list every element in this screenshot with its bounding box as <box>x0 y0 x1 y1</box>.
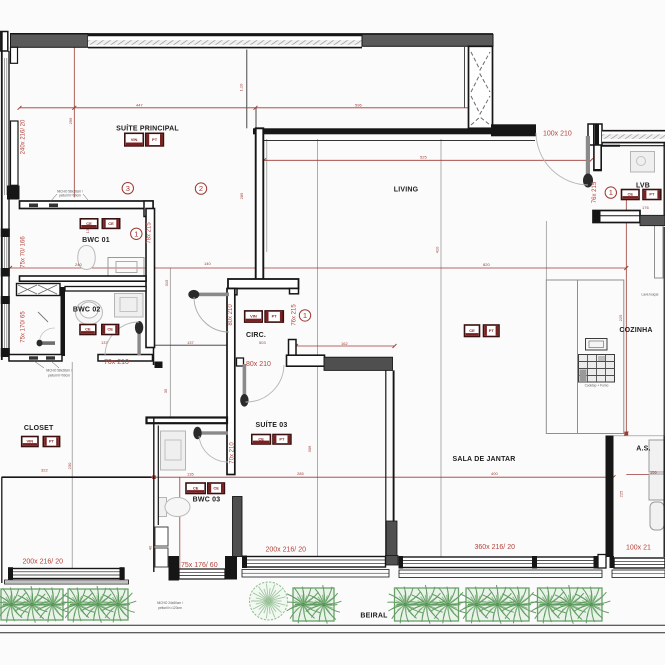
svg-text:Cooktop + Forno: Cooktop + Forno <box>585 384 609 388</box>
svg-text:285: 285 <box>239 192 244 199</box>
svg-text:CE: CE <box>193 485 199 490</box>
svg-text:75x 170/ 65: 75x 170/ 65 <box>21 311 27 343</box>
svg-text:LIVING: LIVING <box>394 187 419 194</box>
svg-text:75x 70/ 166: 75x 70/ 166 <box>21 236 27 268</box>
svg-text:VIN: VIN <box>131 137 138 142</box>
svg-text:PT: PT <box>489 328 495 333</box>
svg-text:525: 525 <box>420 155 427 160</box>
svg-text:peitoril h=90cm: peitoril h=90cm <box>48 374 70 378</box>
svg-text:322: 322 <box>41 468 48 473</box>
svg-text:140: 140 <box>204 261 211 266</box>
svg-text:1: 1 <box>303 311 307 320</box>
svg-text:peitoril h=90cm: peitoril h=90cm <box>59 194 81 198</box>
svg-text:447: 447 <box>136 102 143 107</box>
svg-text:CE: CE <box>85 327 91 332</box>
svg-text:CE: CE <box>86 221 92 226</box>
svg-text:1: 1 <box>609 188 613 197</box>
svg-text:306: 306 <box>307 445 312 452</box>
svg-text:A.S.: A.S. <box>636 446 650 453</box>
svg-text:76x 215: 76x 215 <box>592 181 598 203</box>
svg-text:225: 225 <box>618 314 623 321</box>
svg-text:360x 216/ 20: 360x 216/ 20 <box>475 544 516 551</box>
svg-text:PT: PT <box>279 436 285 441</box>
svg-text:80x 210: 80x 210 <box>246 361 271 368</box>
svg-text:3: 3 <box>126 184 130 193</box>
svg-text:BWC 03: BWC 03 <box>193 497 221 504</box>
svg-text:410: 410 <box>435 246 440 253</box>
svg-text:100x 21: 100x 21 <box>626 545 651 552</box>
svg-text:35: 35 <box>163 388 168 393</box>
svg-text:503: 503 <box>259 340 266 345</box>
svg-text:296: 296 <box>68 117 73 124</box>
svg-text:225: 225 <box>619 490 624 497</box>
svg-text:PT: PT <box>49 439 55 444</box>
svg-text:NICHO 24x60cm /: NICHO 24x60cm / <box>157 601 183 605</box>
svg-text:PT: PT <box>649 192 655 197</box>
svg-text:162: 162 <box>341 341 348 346</box>
svg-text:SALA DE JANTAR: SALA DE JANTAR <box>452 456 515 463</box>
svg-text:VIN: VIN <box>27 439 34 444</box>
svg-text:CIRC.: CIRC. <box>246 332 266 339</box>
svg-text:285: 285 <box>297 471 304 476</box>
svg-text:LVB: LVB <box>636 182 650 189</box>
svg-text:CE: CE <box>108 221 114 226</box>
svg-text:SUÍTE PRINCIPAL: SUÍTE PRINCIPAL <box>116 124 179 133</box>
svg-text:COZINHA: COZINHA <box>619 327 652 334</box>
svg-text:BWC 01: BWC 01 <box>82 237 110 244</box>
svg-text:240: 240 <box>75 262 82 267</box>
svg-text:596: 596 <box>355 102 362 107</box>
svg-text:CE: CE <box>627 192 633 197</box>
svg-text:76x 215: 76x 215 <box>291 304 297 326</box>
svg-text:40: 40 <box>148 545 153 550</box>
svg-text:2: 2 <box>199 184 203 193</box>
svg-text:NICHO 58x28cm /: NICHO 58x28cm / <box>46 369 72 373</box>
svg-text:CLOSET: CLOSET <box>24 425 54 432</box>
svg-text:1: 1 <box>134 229 138 238</box>
svg-text:100x 210: 100x 210 <box>543 130 572 137</box>
svg-text:137: 137 <box>187 340 194 345</box>
svg-text:315: 315 <box>164 279 169 286</box>
svg-text:156: 156 <box>650 470 657 475</box>
svg-text:80x 210: 80x 210 <box>228 304 234 326</box>
svg-text:SUÍTE 03: SUÍTE 03 <box>256 420 288 429</box>
svg-text:PT: PT <box>152 137 158 142</box>
svg-text:1.10: 1.10 <box>239 83 244 92</box>
svg-text:CE: CE <box>107 327 113 332</box>
svg-text:CE: CE <box>213 485 219 490</box>
svg-text:230: 230 <box>67 462 72 469</box>
svg-text:78x 215: 78x 215 <box>146 222 152 244</box>
svg-text:200x 216/ 20: 200x 216/ 20 <box>266 546 307 553</box>
svg-text:CE: CE <box>469 328 475 333</box>
svg-text:Lava louças: Lava louças <box>641 292 658 296</box>
svg-text:BWC 02: BWC 02 <box>73 306 101 313</box>
svg-text:820: 820 <box>483 262 490 267</box>
svg-text:137: 137 <box>101 340 108 345</box>
svg-text:176: 176 <box>642 205 649 210</box>
svg-text:BEIRAL: BEIRAL <box>360 613 388 620</box>
svg-text:70x 210: 70x 210 <box>230 442 236 464</box>
svg-text:PT: PT <box>272 314 278 319</box>
svg-text:75x 176/ 60: 75x 176/ 60 <box>181 562 218 569</box>
svg-text:CE: CE <box>258 436 264 441</box>
svg-text:135: 135 <box>187 472 194 477</box>
svg-text:70x 210: 70x 210 <box>104 359 129 366</box>
svg-text:240x 216/ 20: 240x 216/ 20 <box>21 119 27 154</box>
svg-text:400: 400 <box>491 471 498 476</box>
svg-text:VIN: VIN <box>250 314 257 319</box>
svg-text:peitoril h=120cm: peitoril h=120cm <box>158 606 182 610</box>
svg-text:200x 216/ 20: 200x 216/ 20 <box>23 559 64 566</box>
